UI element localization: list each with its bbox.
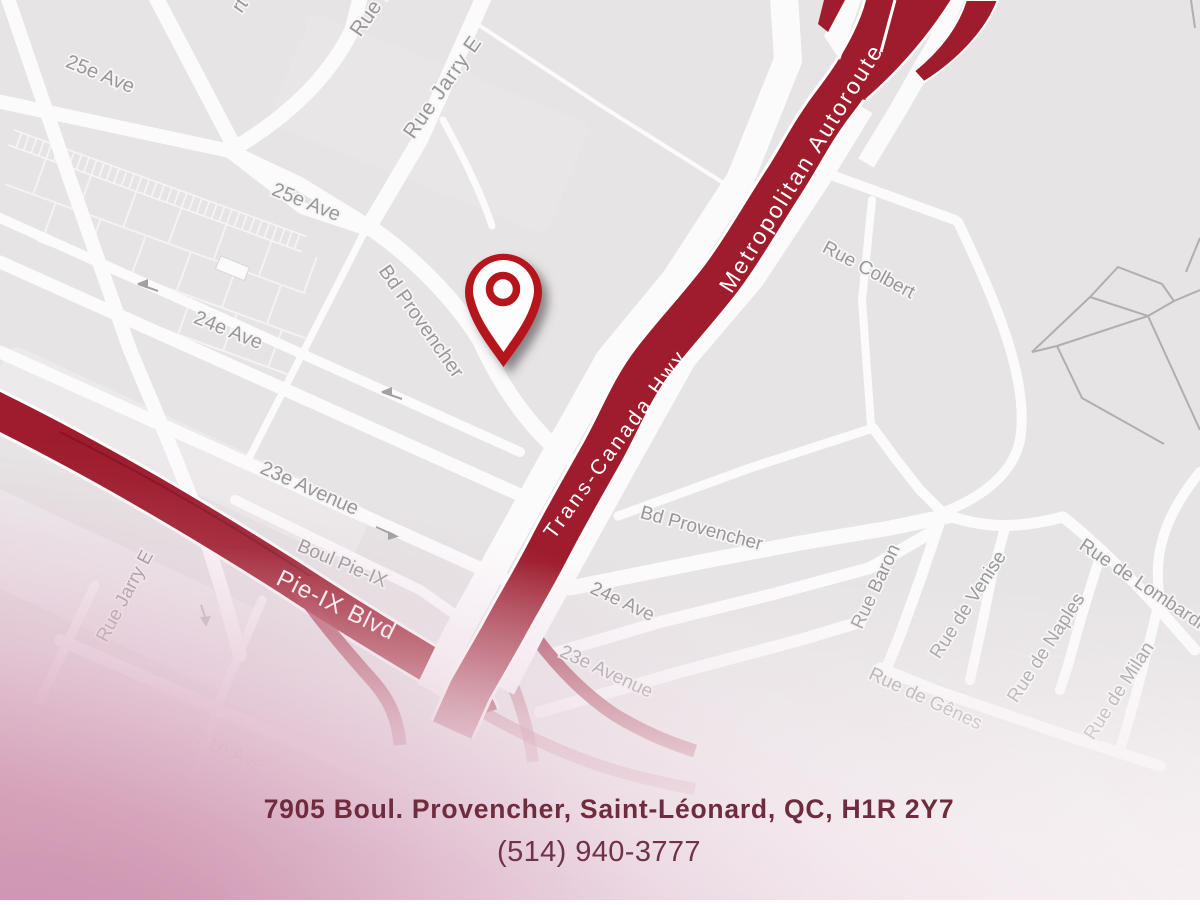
svg-text:(514) 940-3777: (514) 940-3777	[497, 836, 701, 868]
svg-text:7905 Boul. Provencher, Saint-L: 7905 Boul. Provencher, Saint-Léonard, QC…	[264, 794, 955, 824]
